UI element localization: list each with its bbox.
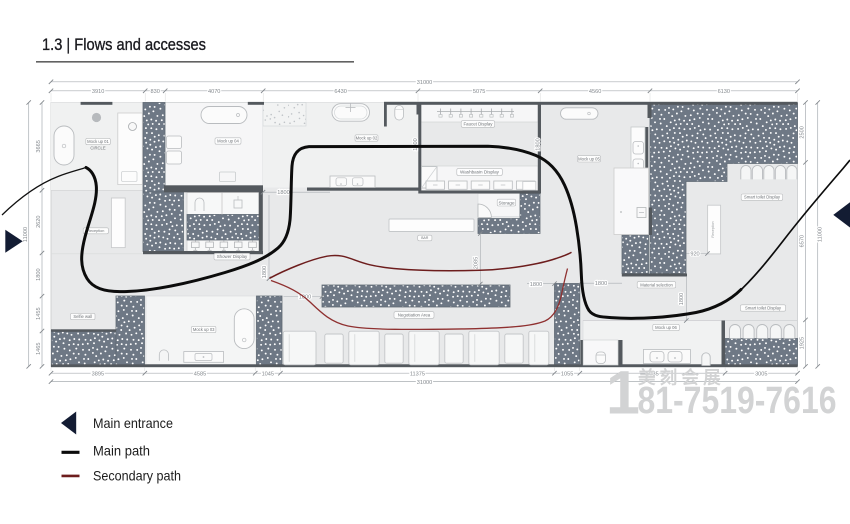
svg-text:1055: 1055 bbox=[561, 371, 573, 377]
svg-text:1800: 1800 bbox=[262, 266, 268, 278]
svg-text:3005: 3005 bbox=[755, 371, 767, 377]
svg-text:3910: 3910 bbox=[92, 89, 104, 95]
svg-text:Mock up 01: Mock up 01 bbox=[87, 139, 109, 144]
svg-text:1800: 1800 bbox=[595, 281, 607, 287]
svg-text:1.3 | Flows and accesses: 1.3 | Flows and accesses bbox=[42, 35, 206, 54]
svg-text:11375: 11375 bbox=[410, 371, 425, 377]
svg-text:Negotiation Area: Negotiation Area bbox=[398, 313, 431, 318]
svg-text:4070: 4070 bbox=[208, 89, 220, 95]
svg-text:1: 1 bbox=[606, 359, 640, 427]
svg-text:1465: 1465 bbox=[36, 342, 42, 354]
svg-text:Mock up 05: Mock up 05 bbox=[578, 156, 600, 161]
svg-text:1925: 1925 bbox=[800, 337, 806, 349]
svg-text:1800: 1800 bbox=[679, 293, 685, 305]
svg-text:CIRCLE: CIRCLE bbox=[90, 146, 106, 151]
svg-text:1800: 1800 bbox=[277, 190, 289, 196]
svg-text:Mock up 04: Mock up 04 bbox=[217, 139, 239, 144]
svg-text:Washbasin Display: Washbasin Display bbox=[460, 170, 500, 175]
svg-text:31000: 31000 bbox=[417, 80, 433, 86]
svg-text:11000: 11000 bbox=[23, 227, 29, 242]
svg-text:Shower Display: Shower Display bbox=[217, 254, 248, 259]
svg-text:31000: 31000 bbox=[417, 380, 433, 386]
svg-text:5075: 5075 bbox=[473, 89, 485, 95]
svg-text:BAR: BAR bbox=[421, 236, 429, 240]
svg-text:Mock up 03: Mock up 03 bbox=[193, 327, 215, 332]
svg-text:6430: 6430 bbox=[334, 89, 346, 95]
svg-text:920: 920 bbox=[690, 251, 699, 257]
svg-text:1455: 1455 bbox=[36, 307, 42, 319]
svg-text:Reception: Reception bbox=[87, 229, 104, 233]
svg-text:Selfie wall: Selfie wall bbox=[73, 314, 92, 319]
svg-text:1800: 1800 bbox=[536, 138, 542, 150]
svg-text:Main entrance: Main entrance bbox=[93, 415, 173, 431]
svg-text:3895: 3895 bbox=[92, 371, 104, 377]
svg-text:4585: 4585 bbox=[194, 371, 206, 377]
svg-text:Smart toilet Display: Smart toilet Display bbox=[745, 306, 782, 311]
svg-text:Main path: Main path bbox=[93, 443, 150, 459]
svg-text:2085: 2085 bbox=[474, 257, 480, 269]
svg-text:Smart toilet Display: Smart toilet Display bbox=[744, 195, 781, 200]
svg-text:6570: 6570 bbox=[800, 235, 806, 247]
svg-text:4560: 4560 bbox=[589, 89, 601, 95]
svg-text:11000: 11000 bbox=[817, 227, 823, 242]
svg-text:3665: 3665 bbox=[36, 140, 42, 152]
svg-text:Storage: Storage bbox=[498, 200, 515, 205]
svg-text:1045: 1045 bbox=[262, 371, 274, 377]
svg-text:1800: 1800 bbox=[530, 282, 542, 288]
svg-text:Mock up 06: Mock up 06 bbox=[655, 325, 677, 330]
svg-text:830: 830 bbox=[151, 89, 160, 95]
svg-text:Material selection: Material selection bbox=[640, 282, 673, 287]
svg-text:81-7519-7616: 81-7519-7616 bbox=[638, 380, 837, 422]
svg-text:6130: 6130 bbox=[718, 89, 730, 95]
svg-text:1800: 1800 bbox=[36, 268, 42, 280]
svg-text:2620: 2620 bbox=[36, 215, 42, 227]
svg-text:2500: 2500 bbox=[800, 126, 806, 138]
svg-text:Reception: Reception bbox=[711, 221, 715, 237]
svg-text:Mock up 02: Mock up 02 bbox=[356, 136, 378, 141]
svg-text:Faucet Display: Faucet Display bbox=[463, 122, 493, 127]
svg-text:1800: 1800 bbox=[413, 138, 419, 150]
svg-text:Secondary path: Secondary path bbox=[93, 467, 181, 483]
